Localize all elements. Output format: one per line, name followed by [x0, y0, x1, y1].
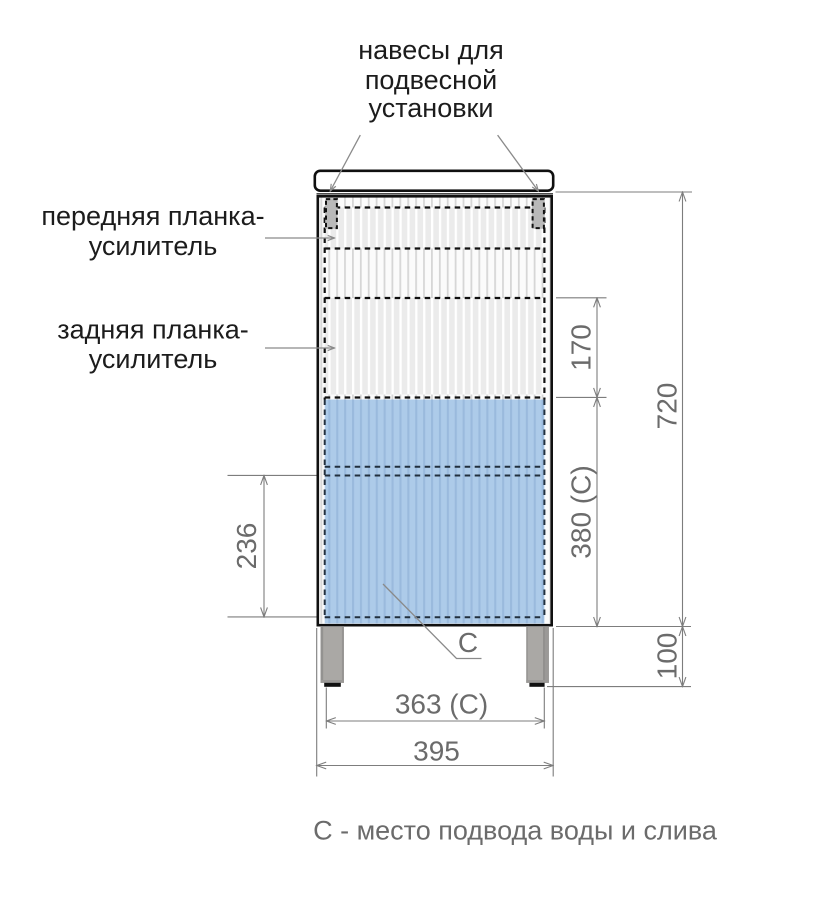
svg-text:подвесной: подвесной	[365, 65, 497, 95]
svg-text:установки: установки	[369, 93, 494, 123]
svg-text:навесы для: навесы для	[358, 35, 504, 65]
svg-text:задняя планка-: задняя планка-	[57, 315, 249, 345]
svg-text:363 (C): 363 (C)	[395, 689, 488, 720]
svg-text:720: 720	[652, 383, 683, 430]
svg-text:C: C	[458, 627, 478, 658]
svg-text:380 (C): 380 (C)	[566, 465, 597, 558]
svg-text:передняя планка-: передняя планка-	[41, 201, 264, 231]
svg-text:170: 170	[566, 324, 597, 371]
svg-text:С - место подвода воды и слива: С - место подвода воды и слива	[313, 816, 718, 846]
svg-text:усилитель: усилитель	[89, 344, 218, 374]
svg-text:усилитель: усилитель	[89, 231, 218, 261]
svg-text:236: 236	[231, 523, 262, 570]
svg-text:395: 395	[413, 736, 460, 767]
svg-text:100: 100	[652, 633, 683, 680]
